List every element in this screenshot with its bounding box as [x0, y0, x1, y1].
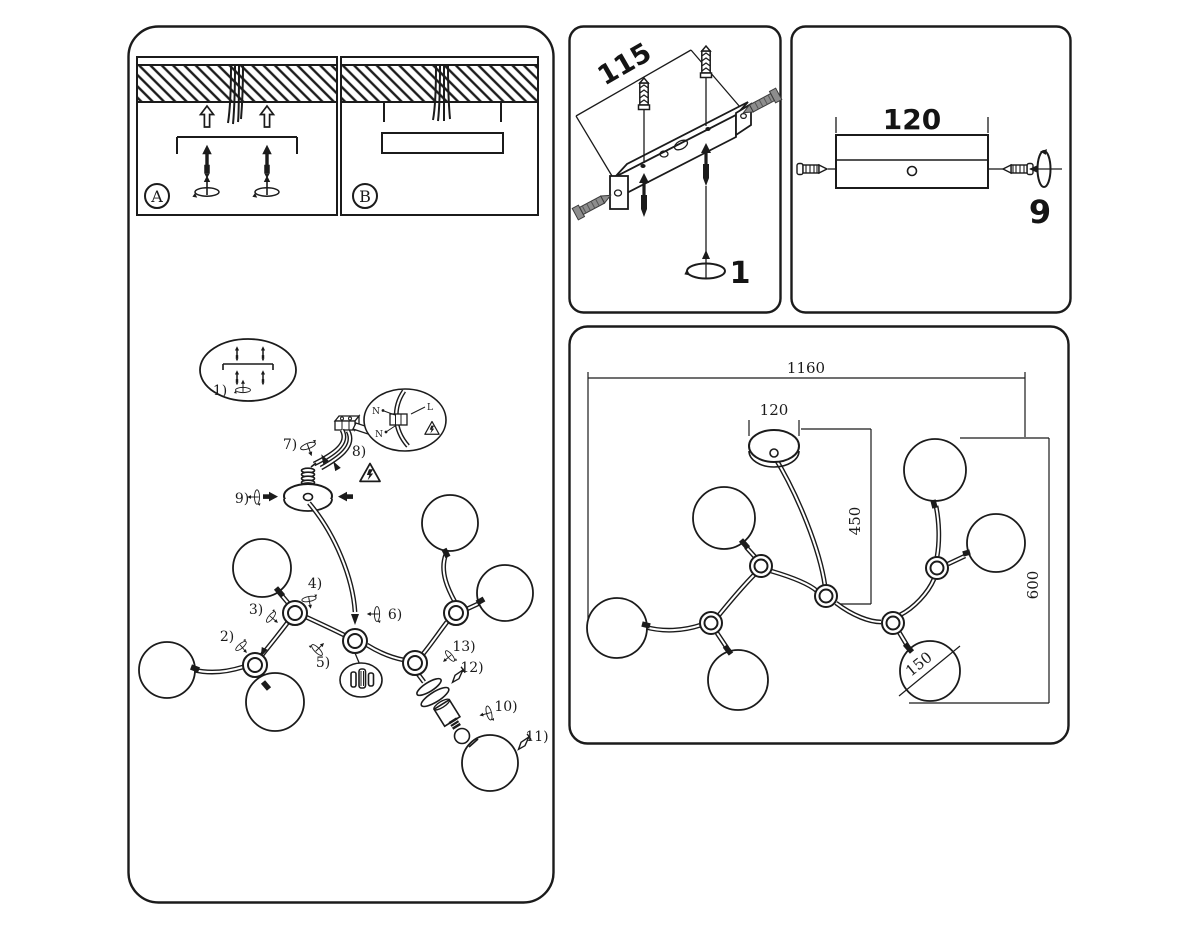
glass-globe: [904, 439, 966, 501]
arm-joint: [283, 601, 307, 625]
instruction-sheet: A B 1): [0, 0, 1200, 933]
socket-contact: [369, 673, 374, 686]
step-label: 2): [220, 629, 234, 645]
glass-globe: [693, 487, 755, 549]
glass-globe: [462, 735, 518, 791]
screw-arrow-icon: [262, 145, 272, 179]
glass-globes: [587, 439, 1025, 710]
overall-width-dim: 1160: [787, 359, 825, 377]
neutral-wire-label: N: [375, 430, 383, 440]
ceiling-canopy: [749, 430, 799, 467]
canopy-side-panel: 120 9: [790, 25, 1072, 314]
glass-globe: [587, 598, 647, 658]
screw-rotation-icon: [192, 176, 219, 198]
glass-globe: [139, 642, 195, 698]
arm-joint: [882, 612, 904, 634]
ceiling-hatch: [137, 65, 337, 102]
center-offset-dim: 450: [846, 507, 864, 536]
arm-joint: [926, 557, 948, 579]
screw-rotation-icon: [478, 705, 495, 724]
step-number: 9: [1029, 193, 1051, 231]
step-label: 9): [235, 491, 249, 507]
step-label: 7): [283, 437, 297, 453]
glass-globe: [708, 650, 768, 710]
rotation-symbol: [684, 186, 725, 279]
screw-rotation-icon: [264, 609, 283, 628]
option-a-label: A: [150, 187, 163, 206]
screw-rotation-icon: [299, 439, 320, 458]
overall-depth-dim: 600: [1024, 571, 1042, 600]
canopy-diameter-dim: 120: [760, 401, 789, 419]
wiring-detail-bubble: N L N: [364, 389, 446, 451]
screw-arrow-icon: [202, 145, 212, 179]
bracket-hooks: [384, 102, 501, 122]
terminal-block: [390, 414, 407, 425]
bracket-front-face: [615, 115, 736, 199]
wall-anchor-icon: [201, 106, 214, 127]
wall-anchor-icon: [639, 78, 650, 110]
neutral-wire-label: N: [372, 407, 380, 417]
socket-contact: [351, 672, 356, 687]
threaded-nipple: [302, 463, 317, 485]
glass-globe: [967, 514, 1025, 572]
glass-globe: [246, 673, 304, 731]
step-label: 3): [249, 602, 263, 618]
glass-globe: [422, 495, 478, 551]
rotation-symbol: [1029, 149, 1062, 187]
screw-icon: [1003, 164, 1033, 175]
bracket-mounting-panel: 115: [568, 25, 782, 314]
screw-rotation-icon: [367, 607, 381, 623]
canopy-width-dim: 120: [883, 103, 941, 136]
arm-joint: [444, 601, 468, 625]
step-label: 1): [213, 383, 227, 399]
step-label: 12): [460, 660, 483, 676]
mounting-bracket-3d: [610, 102, 751, 209]
side-screw-icon: [572, 190, 613, 220]
lamp-socket: [359, 669, 366, 688]
bulb-icon: [449, 717, 470, 743]
glass-globe: [477, 565, 533, 621]
mounting-bracket: [177, 137, 297, 154]
step-label: 8): [352, 444, 366, 460]
step-label: 6): [388, 607, 402, 623]
glass-globe: [233, 539, 291, 597]
wall-anchor-icon: [261, 106, 274, 127]
step-label: 10): [494, 699, 517, 715]
bracket-detail-bubble: 1): [200, 339, 296, 401]
electric-hazard-icon: [360, 464, 380, 482]
arm-joint: [403, 651, 427, 675]
arm-joint: [815, 585, 837, 607]
step-number: 1: [730, 256, 751, 291]
arm-joint: [700, 612, 722, 634]
step-label: 5): [316, 655, 330, 671]
center-hole: [770, 449, 778, 457]
stem-arm: [309, 503, 359, 625]
socket-detail-bubble: [340, 653, 382, 697]
ceiling-option-b-diagram: B: [341, 57, 538, 215]
option-b-label: B: [359, 187, 371, 206]
arm-joint: [750, 555, 772, 577]
bracket-left-flange: [610, 176, 628, 209]
exploded-assembly-diagram: 1): [139, 339, 549, 791]
step-label: 4): [308, 576, 322, 592]
canopy-bar: [836, 135, 988, 188]
ceiling-canopy: [284, 483, 332, 511]
wall-anchor-icon: [701, 46, 712, 78]
ceiling-option-a-diagram: A: [137, 57, 337, 215]
supply-wires: [314, 430, 350, 471]
arm-joint: [343, 629, 367, 653]
screw-icon: [797, 164, 827, 175]
canopy-plate: [382, 133, 503, 153]
screw-rotation-icon: [252, 176, 279, 198]
arm-joint: [243, 653, 267, 677]
live-wire-label: L: [427, 403, 433, 413]
step-label: 13): [452, 639, 475, 655]
assembly-panel: A B 1): [127, 25, 555, 905]
plan-view-panel: 1160 120 450 600: [568, 325, 1070, 745]
